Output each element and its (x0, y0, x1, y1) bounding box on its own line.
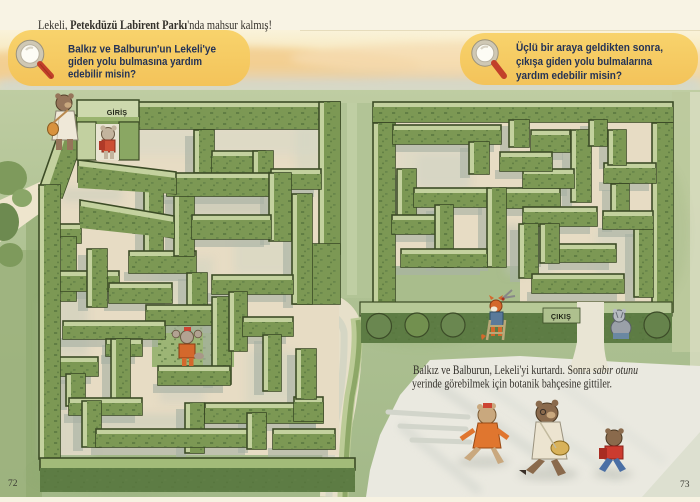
svg-text:ÇIKIŞ: ÇIKIŞ (551, 312, 571, 321)
svg-text:yardım edebilir misin?: yardım edebilir misin? (516, 70, 622, 82)
svg-text:giden yolu bulmasına yardım: giden yolu bulmasına yardım (68, 56, 202, 68)
svg-text:Lekeli, Petekdüzü Labirent Par: Lekeli, Petekdüzü Labirent Parkı'nda mah… (38, 18, 272, 32)
svg-text:GİRİŞ: GİRİŞ (107, 108, 128, 117)
svg-text:çıkışa giden yolu bulmalarına: çıkışa giden yolu bulmalarına (516, 56, 653, 68)
svg-text:Balkız ve Balburun'un Lekeli'y: Balkız ve Balburun'un Lekeli'ye (68, 44, 216, 56)
svg-text:edebilir misin?: edebilir misin? (68, 69, 136, 81)
svg-text:Balkız ve Balburun, Lekeli'yi: Balkız ve Balburun, Lekeli'yi kurtardı. … (413, 363, 638, 377)
svg-text:72: 72 (8, 479, 18, 489)
svg-text:73: 73 (680, 480, 690, 490)
svg-text:Üçlü bir araya geldikten sonra: Üçlü bir araya geldikten sonra, (516, 41, 663, 54)
svg-text:yerinde görebilmek için botani: yerinde görebilmek için botanik bahçesin… (412, 377, 612, 391)
